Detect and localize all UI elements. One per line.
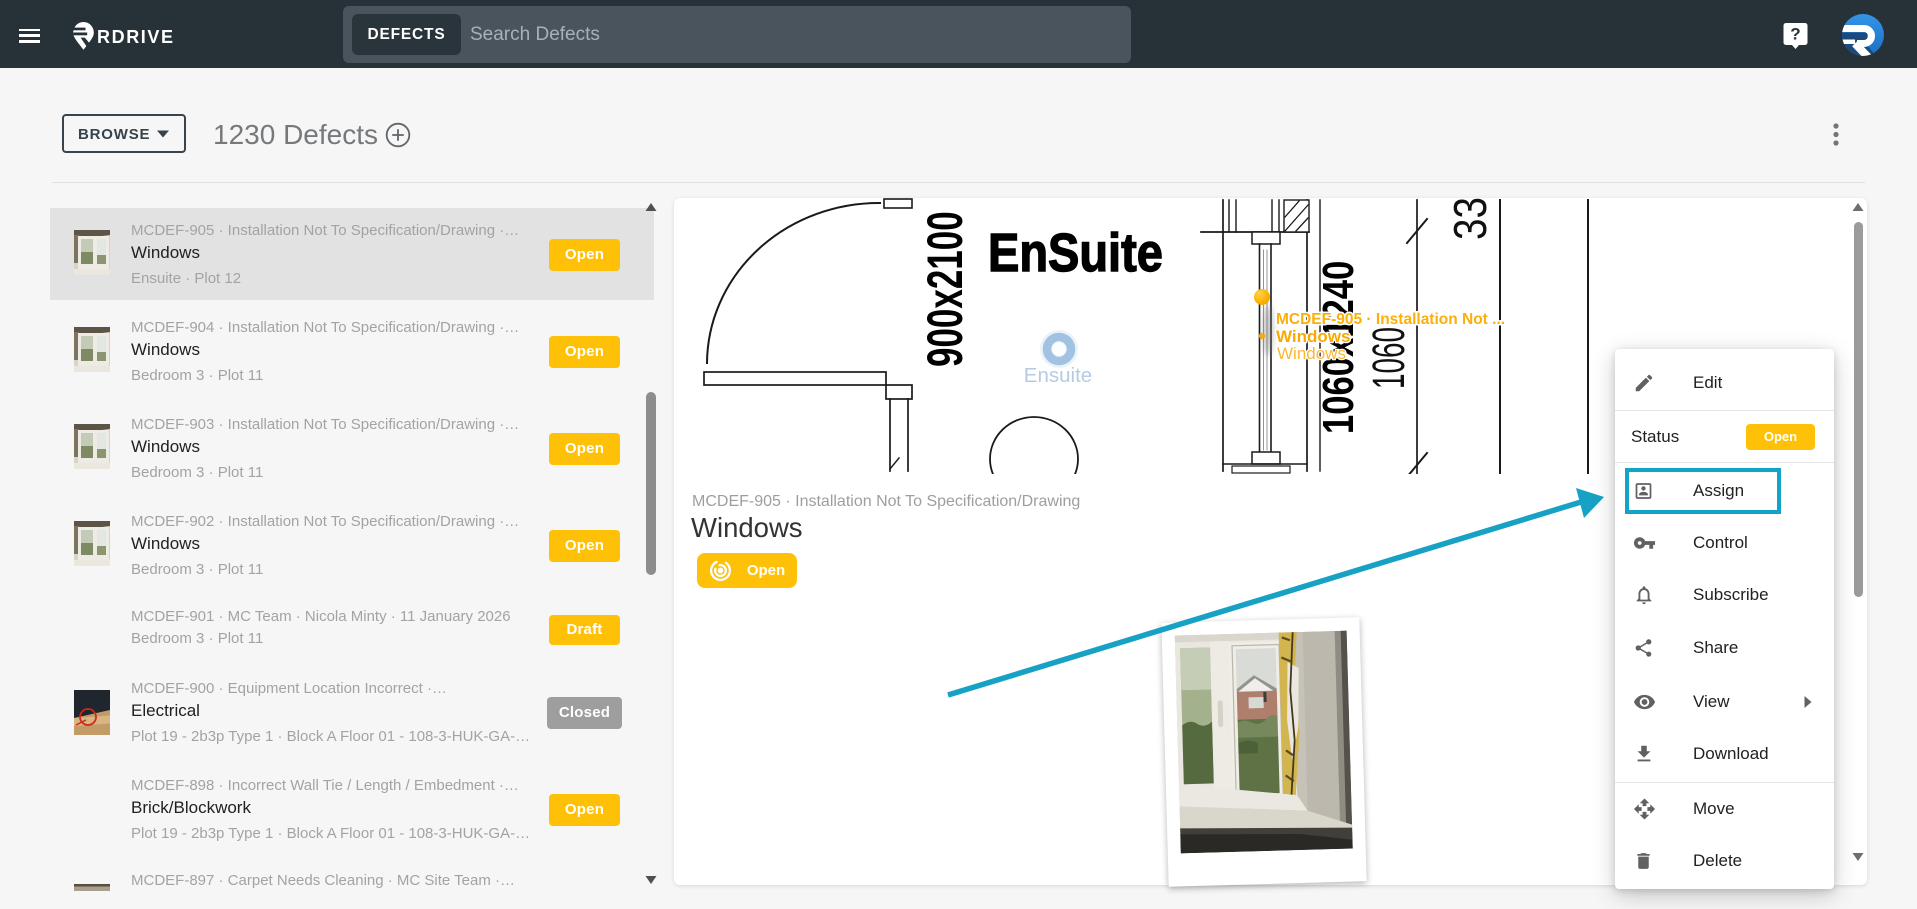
svg-text:MCDEF-905 · Installation Not .: MCDEF-905 · Installation Not ... (1276, 311, 1505, 328)
svg-text:1060: 1060 (1363, 327, 1413, 389)
svg-text:33: 33 (1445, 198, 1496, 240)
svg-text:?: ? (1790, 25, 1800, 44)
svg-text:Ensuite: Ensuite (1024, 364, 1092, 387)
svg-text:900x2100: 900x2100 (918, 211, 974, 367)
svg-text:Windows: Windows (1277, 344, 1346, 363)
svg-text:EnSuite: EnSuite (988, 222, 1163, 283)
